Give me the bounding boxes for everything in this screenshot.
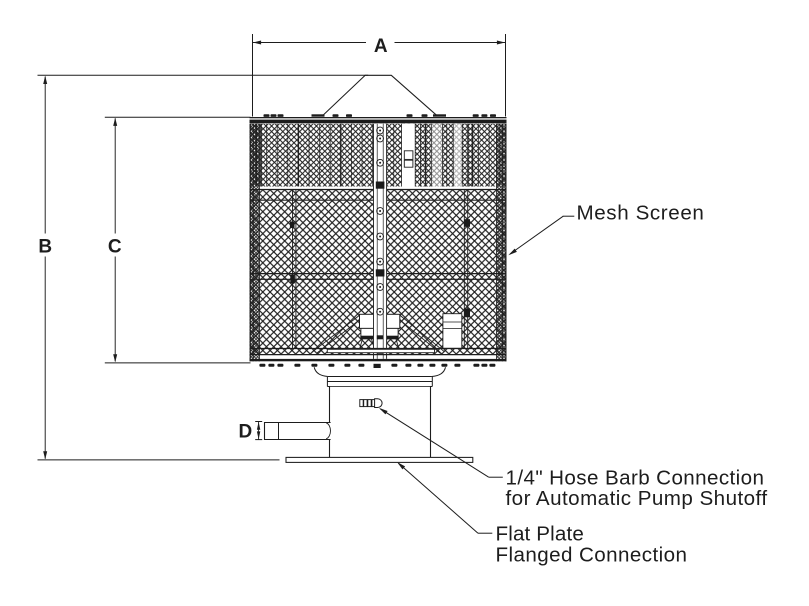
svg-text:A: A [374, 36, 388, 57]
svg-text:1/4" Hose Barb Connection: 1/4" Hose Barb Connection [506, 466, 765, 489]
svg-text:Flanged Connection: Flanged Connection [496, 543, 688, 566]
svg-text:B: B [38, 236, 52, 257]
svg-text:Mesh Screen: Mesh Screen [577, 202, 705, 225]
svg-text:D: D [239, 421, 253, 442]
svg-text:for Automatic Pump Shutoff: for Automatic Pump Shutoff [506, 487, 768, 510]
svg-text:C: C [108, 236, 122, 257]
svg-text:Flat Plate: Flat Plate [496, 523, 585, 546]
